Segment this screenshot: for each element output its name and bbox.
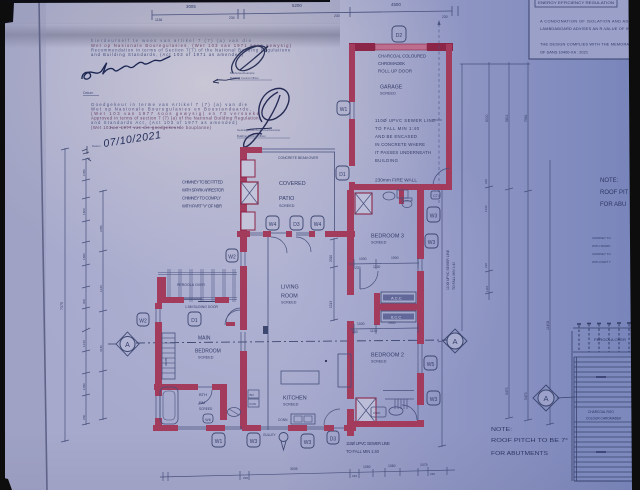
svg-text:Datum: Datum — [92, 144, 101, 148]
svg-text:W4: W4 — [314, 222, 322, 228]
svg-text:230: 230 — [243, 476, 248, 480]
svg-text:Datum: Datum — [83, 91, 93, 95]
svg-text:1.5M SLIDING DOOR: 1.5M SLIDING DOOR — [185, 305, 219, 309]
svg-text:5473: 5473 — [505, 387, 509, 395]
svg-text:LIVING: LIVING — [281, 285, 299, 291]
svg-text:5473: 5473 — [524, 392, 528, 400]
svg-text:SCREED: SCREED — [371, 241, 387, 245]
svg-text:W3: W3 — [430, 397, 438, 403]
svg-text:KOS: KOS — [250, 402, 256, 406]
svg-text:5801: 5801 — [505, 114, 509, 122]
svg-text:A: A — [125, 342, 130, 349]
svg-text:CONN: CONN — [278, 418, 288, 422]
svg-text:SCREED: SCREED — [198, 356, 214, 360]
svg-text:A.C.C: A.C.C — [391, 296, 402, 301]
svg-text:6000: 6000 — [485, 114, 489, 122]
svg-text:WITH SPARK ARRESTOR: WITH SPARK ARRESTOR — [182, 188, 224, 193]
svg-text:SCREED: SCREED — [283, 403, 299, 407]
svg-text:1050: 1050 — [82, 383, 86, 390]
svg-text:1500: 1500 — [82, 208, 86, 215]
svg-text:WITH PART T: WITH PART T — [592, 260, 611, 264]
svg-text:W4: W4 — [269, 222, 277, 228]
svg-text:PERGOLA OVER: PERGOLA OVER — [177, 283, 206, 287]
svg-text:CHID: CHID — [373, 411, 381, 415]
svg-text:5200: 5200 — [292, 3, 302, 8]
svg-text:Building Control Officer: Building Control Officer — [237, 134, 266, 138]
svg-text:PERGOLA OVER: PERGOLA OVER — [594, 338, 626, 342]
svg-text:CHARCOAL COLOURED: CHARCOAL COLOURED — [378, 54, 426, 59]
svg-text:BEDROOM: BEDROOM — [195, 349, 221, 355]
svg-text:CHIMNEY TO COMPLY: CHIMNEY TO COMPLY — [182, 196, 221, 201]
svg-text:4500: 4500 — [391, 2, 401, 7]
svg-text:230: 230 — [229, 16, 235, 20]
svg-text:TO FALL MIN 1:40: TO FALL MIN 1:40 — [346, 449, 380, 454]
svg-text:2010: 2010 — [329, 255, 333, 262]
svg-text:1900: 1900 — [391, 256, 399, 260]
svg-text:SCREED: SCREED — [281, 301, 297, 305]
svg-text:1075: 1075 — [420, 463, 428, 467]
svg-text:ROOF PITCH TO BE 7°: ROOF PITCH TO BE 7° — [491, 438, 568, 444]
svg-text:Boubeheerbeampte: Boubeheerbeampte — [230, 71, 255, 75]
svg-text:CHIMNEY TO BE FITTED: CHIMNEY TO BE FITTED — [182, 180, 223, 185]
svg-text:W1: W1 — [340, 107, 348, 113]
svg-text:1118: 1118 — [485, 285, 489, 292]
svg-text:230mm FIRE WALL: 230mm FIRE WALL — [375, 178, 418, 183]
svg-text:110Ø UPVC SEWER LINE: 110Ø UPVC SEWER LINE — [346, 441, 390, 446]
svg-text:1050: 1050 — [82, 169, 86, 176]
svg-text:3130: 3130 — [99, 345, 103, 352]
svg-text:THE DESIGN COMPLIES WITH THE M: THE DESIGN COMPLIES WITH THE MEMORAN — [540, 42, 632, 47]
svg-text:230: 230 — [334, 14, 340, 18]
svg-text:230: 230 — [430, 472, 435, 476]
svg-text:OF SANS 10400-XA : 2021: OF SANS 10400-XA : 2021 — [540, 50, 588, 55]
svg-text:BEDROOM 2: BEDROOM 2 — [371, 353, 404, 359]
svg-text:ENERGY EFFICIENCY REGULATION: ENERGY EFFICIENCY REGULATION — [538, 1, 614, 5]
svg-text:W3: W3 — [304, 440, 312, 446]
svg-text:W2: W2 — [139, 319, 147, 325]
svg-text:A: A — [452, 337, 457, 346]
svg-text:CHIMNEY TO: CHIMNEY TO — [592, 252, 611, 256]
svg-text:1000: 1000 — [359, 257, 367, 261]
svg-text:NOTE:: NOTE: — [491, 427, 512, 433]
svg-text:D3: D3 — [293, 222, 300, 228]
svg-text:230: 230 — [484, 179, 488, 184]
svg-text:D1: D1 — [339, 172, 346, 178]
svg-text:COVERED: COVERED — [279, 181, 306, 187]
svg-text:1900: 1900 — [388, 321, 396, 325]
svg-text:BO: BO — [250, 393, 255, 397]
svg-text:7581: 7581 — [524, 114, 528, 122]
svg-text:ROOM: ROOM — [281, 294, 298, 300]
svg-text:GARAGE: GARAGE — [380, 85, 403, 91]
svg-text:2480: 2480 — [99, 225, 103, 232]
svg-text:KITCHEN: KITCHEN — [283, 396, 307, 402]
svg-text:W3: W3 — [430, 214, 438, 220]
svg-text:C7: C7 — [433, 194, 438, 198]
svg-text:1133: 1133 — [99, 285, 103, 292]
svg-text:W.RB: W.RB — [164, 358, 168, 366]
svg-text:D3: D3 — [330, 437, 337, 443]
svg-text:TO FALL MIN 1:40: TO FALL MIN 1:40 — [452, 262, 456, 290]
svg-text:NOTE:: NOTE: — [600, 178, 619, 184]
svg-text:W3: W3 — [250, 439, 258, 445]
svg-text:Gedelegeerde Boubeheerbeampte: Gedelegeerde Boubeheerbeampte — [237, 128, 281, 132]
svg-text:230: 230 — [352, 474, 357, 478]
svg-text:FOR ABUTMENTS: FOR ABUTMENTS — [491, 451, 548, 457]
svg-text:1213: 1213 — [329, 301, 333, 308]
svg-text:GULLEY: GULLEY — [263, 433, 276, 437]
svg-text:WITH PART "V" OF NBR: WITH PART "V" OF NBR — [182, 204, 222, 209]
svg-text:SCREED: SCREED — [279, 204, 295, 208]
svg-text:3005: 3005 — [186, 4, 196, 9]
svg-text:D1: D1 — [191, 318, 198, 324]
svg-text:1050: 1050 — [363, 465, 371, 469]
svg-text:WITH SPARK: WITH SPARK — [592, 244, 610, 248]
svg-text:11408: 11408 — [546, 321, 550, 330]
svg-text:SCREED: SCREED — [380, 92, 396, 96]
svg-text:TO FALL MIN 1:40: TO FALL MIN 1:40 — [375, 126, 420, 131]
svg-text:LAMBDABOARD ADVISES AN R-VALUE: LAMBDABOARD ADVISES AN R-VALUE OF IN — [540, 26, 630, 31]
svg-text:1000: 1000 — [357, 322, 365, 326]
svg-text:and Building Standards, (Act 1: and Building Standards, (Act 103 of 1971… — [91, 52, 244, 57]
svg-text:110Ø UPVC SEWER LINE: 110Ø UPVC SEWER LINE — [375, 118, 435, 123]
svg-text:IN CONCRETE WHERE: IN CONCRETE WHERE — [375, 142, 425, 147]
svg-text:3005: 3005 — [290, 467, 298, 471]
svg-text:W1: W1 — [215, 439, 223, 445]
svg-text:1060: 1060 — [388, 464, 396, 468]
svg-text:COLOUR CHROMADEK: COLOUR CHROMADEK — [586, 417, 622, 421]
svg-text:110Ø UPVC SEWER LINE: 110Ø UPVC SEWER LINE — [446, 249, 450, 290]
svg-text:BUILDING: BUILDING — [375, 158, 399, 163]
svg-text:BTH: BTH — [199, 392, 207, 397]
svg-text:230: 230 — [484, 263, 488, 268]
svg-text:6.C.C: 6.C.C — [391, 315, 401, 320]
svg-text:7375: 7375 — [60, 302, 64, 310]
svg-text:ROOF PIT: ROOF PIT — [600, 190, 629, 196]
svg-text:1136: 1136 — [155, 18, 162, 22]
svg-text:900: 900 — [82, 299, 86, 304]
svg-text:W3: W3 — [428, 240, 436, 246]
svg-text:230: 230 — [352, 330, 358, 334]
svg-text:ROLL UP DOOR: ROLL UP DOOR — [378, 69, 412, 74]
svg-text:1133: 1133 — [82, 340, 86, 347]
svg-text:RM: RM — [199, 400, 205, 405]
svg-text:PATIO: PATIO — [279, 196, 294, 202]
svg-text:1130: 1130 — [373, 265, 380, 269]
svg-text:1130: 1130 — [484, 205, 488, 212]
svg-text:FOR ABU: FOR ABU — [600, 202, 626, 208]
svg-text:MAIN: MAIN — [198, 336, 211, 342]
svg-text:A CONDONATION OF ISOLATION AND: A CONDONATION OF ISOLATION AND ADM — [540, 19, 632, 24]
svg-text:W2: W2 — [228, 255, 236, 261]
svg-text:CHROMADEK: CHROMADEK — [378, 61, 405, 66]
svg-text:BEDROOM 3: BEDROOM 3 — [371, 234, 404, 240]
svg-text:SCREED: SCREED — [199, 407, 213, 411]
svg-text:230: 230 — [82, 415, 86, 420]
svg-text:Building Control Officer: Building Control Officer — [230, 76, 259, 80]
svg-text:W5: W5 — [427, 362, 435, 368]
svg-text:1860: 1860 — [82, 253, 86, 260]
svg-text:AND BE ENCASED: AND BE ENCASED — [375, 134, 417, 139]
svg-text:SCREED: SCREED — [371, 360, 387, 364]
svg-text:D2: D2 — [396, 33, 403, 39]
svg-text:230: 230 — [442, 15, 448, 19]
svg-text:CHARCOAL ROO: CHARCOAL ROO — [588, 410, 614, 414]
svg-text:W6: W6 — [205, 418, 210, 422]
svg-text:CHIMNEY TO: CHIMNEY TO — [592, 236, 611, 240]
svg-text:CONCRETE BEAM OVER: CONCRETE BEAM OVER — [278, 156, 319, 160]
svg-text:A: A — [543, 394, 548, 403]
svg-text:IT PASSES UNDERNEATH: IT PASSES UNDERNEATH — [375, 150, 431, 155]
